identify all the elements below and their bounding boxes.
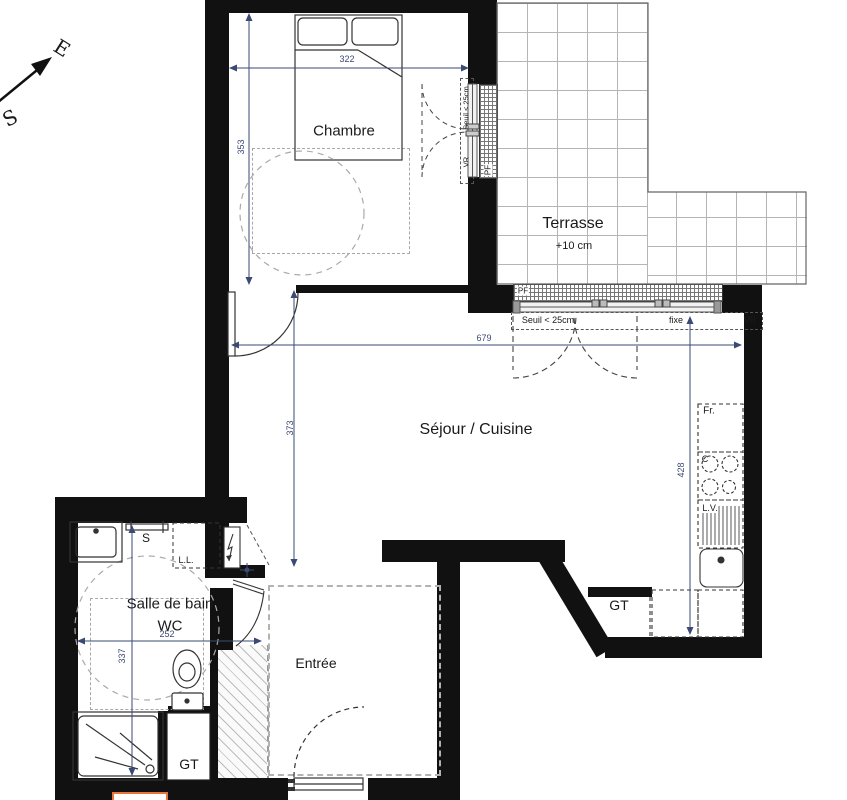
sejour-window-threshold: Seuil < 25cm	[522, 315, 574, 325]
shower-icon	[73, 712, 163, 780]
sejour-window-frame	[513, 300, 721, 313]
compass-icon	[0, 57, 52, 112]
dim-sdb-width: 252	[159, 629, 174, 639]
counter-unit	[652, 590, 698, 637]
chambre-window-shutter: VR	[462, 157, 471, 167]
dim-chambre-width: 322	[339, 54, 354, 64]
chambre-window-threshold: Seuil < 25cm	[462, 86, 471, 130]
bathroom-door-icon	[233, 580, 264, 646]
dim-sejour-depth: 373	[285, 420, 295, 435]
sink-icon	[700, 549, 743, 587]
cooktop-label: C	[702, 454, 709, 464]
sejour-window-fixed: fixe	[669, 315, 683, 325]
room-label-entree: Entrée	[295, 655, 336, 671]
dim-cuisine-depth: 428	[676, 462, 686, 477]
room-label-terrasse: Terrasse	[542, 215, 603, 233]
room-label-salle-de-bain: Salle de bain	[127, 596, 214, 613]
terrasse-elevation: +10 cm	[556, 240, 592, 252]
dishwasher-label: L.V.	[701, 503, 718, 513]
kitchen-appliances	[650, 404, 743, 637]
toilet-icon	[172, 650, 203, 710]
dim-chambre-depth: 353	[236, 139, 246, 154]
plan-linework	[0, 0, 847, 800]
room-label-chambre: Chambre	[313, 123, 375, 140]
entrance-door-icon	[288, 707, 364, 791]
washbasin-icon	[70, 522, 122, 562]
gt-kitchen-label: GT	[609, 597, 628, 613]
terrasse-outline	[497, 3, 806, 284]
dim-sejour-width: 679	[476, 333, 491, 343]
floor-plan: Chambre Terrasse +10 cm Séjour / Cuisine…	[0, 0, 847, 800]
sejour-window-type: PF	[517, 287, 529, 296]
sejour-window-shutter: VR	[744, 315, 757, 325]
chambre-door-icon	[228, 292, 298, 356]
fridge-label: Fr.	[703, 406, 715, 417]
chambre-turning-circle	[240, 151, 364, 275]
gt-bathroom-label: GT	[179, 756, 198, 772]
chambre-window-type: PF	[484, 164, 493, 176]
chambre-window-swing-icon	[422, 84, 467, 177]
panel-door-swing	[247, 525, 269, 565]
towel-dryer-label: S	[142, 531, 150, 545]
room-label-sejour-cuisine: Séjour / Cuisine	[420, 421, 533, 439]
washing-machine-label: L.L.	[178, 555, 193, 565]
dim-sdb-depth: 337	[117, 648, 127, 663]
counter-unit	[698, 590, 743, 637]
electrical-panel-icon	[224, 527, 240, 568]
